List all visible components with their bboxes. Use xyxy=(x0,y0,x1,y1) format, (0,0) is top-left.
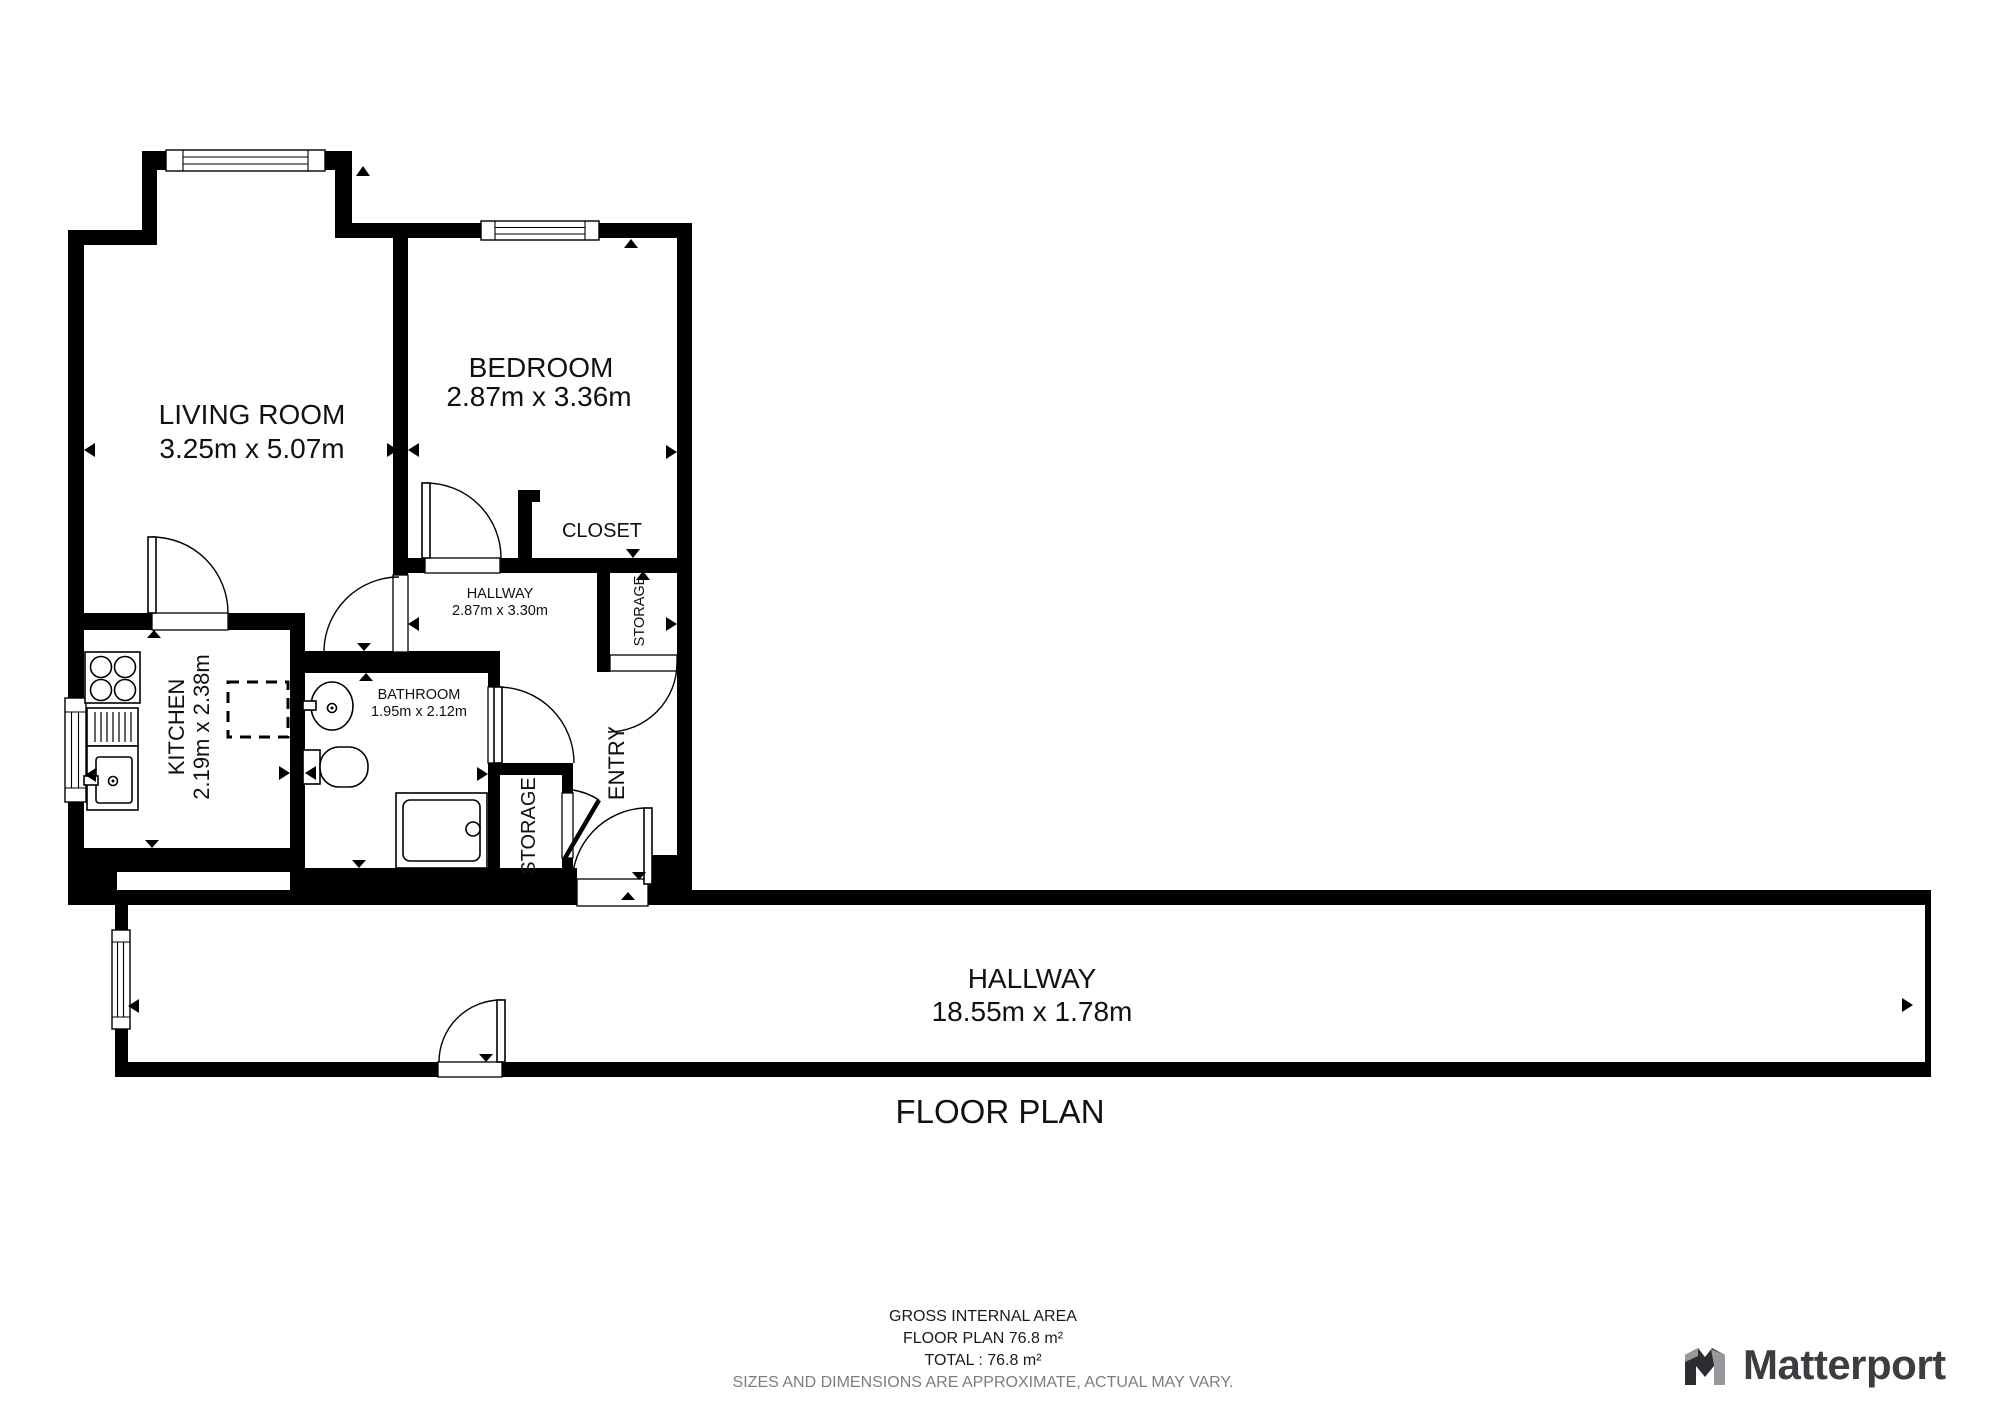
bathroom-door xyxy=(494,687,574,763)
hallway-door-opening xyxy=(438,1062,502,1077)
bedroom-window xyxy=(481,221,599,240)
arrow-marker xyxy=(408,617,419,631)
wall-segment xyxy=(488,651,500,687)
arrow-marker xyxy=(357,643,371,651)
arrow-marker xyxy=(626,549,640,558)
living-hallway-door xyxy=(324,577,399,652)
kitchen-dims: 2.19m x 2.38m xyxy=(189,654,214,800)
kitchen-window xyxy=(65,698,86,802)
bathroom-dims: 1.95m x 2.12m xyxy=(371,704,467,720)
disclaimer-line: SIZES AND DIMENSIONS ARE APPROXIMATE, AC… xyxy=(0,1372,1966,1394)
wall-segment xyxy=(562,763,573,793)
wall-segment xyxy=(597,558,610,672)
wall-segment xyxy=(142,151,157,245)
storage-lower-label: STORAGE xyxy=(518,777,540,874)
hallway-long-dims: 18.55m x 1.78m xyxy=(932,996,1133,1027)
gross-internal-area-line: GROSS INTERNAL AREA xyxy=(0,1306,1966,1328)
arrow-marker xyxy=(479,1054,493,1062)
arrow-marker xyxy=(359,673,373,681)
hallway-exit-door xyxy=(439,1000,505,1062)
living-room-dims: 3.25m x 5.07m xyxy=(159,433,344,464)
wall-segment xyxy=(488,763,573,775)
wall-segment xyxy=(1925,890,1931,1077)
wall-segment xyxy=(502,1062,1931,1077)
wall-segment xyxy=(68,230,84,700)
storage-upper-opening xyxy=(610,655,677,671)
matterport-branding: Matterport xyxy=(1680,1340,1946,1390)
arrow-marker xyxy=(279,766,290,780)
wall-segment xyxy=(68,848,117,905)
living-room-label: LIVING ROOM xyxy=(159,399,346,430)
shower xyxy=(396,793,487,868)
kitchen-door xyxy=(148,537,228,613)
footer: GROSS INTERNAL AREA FLOOR PLAN 76.8 m² T… xyxy=(0,1306,1966,1394)
arrow-markers xyxy=(84,166,1913,1062)
wall-segment xyxy=(290,651,500,673)
arrow-marker xyxy=(352,860,366,868)
arrow-marker xyxy=(477,767,488,781)
wall-segment xyxy=(393,558,425,573)
wall-segment xyxy=(648,855,692,893)
toilet xyxy=(303,747,368,787)
stove xyxy=(85,652,140,703)
arrow-marker xyxy=(408,443,419,457)
hallway-small-dims: 2.87m x 3.30m xyxy=(452,603,548,619)
floor-plan-area-line: FLOOR PLAN 76.8 m² xyxy=(0,1328,1966,1350)
arrow-marker xyxy=(624,239,638,248)
wall-segment xyxy=(84,613,152,630)
total-area-line: TOTAL : 76.8 m² xyxy=(0,1350,1966,1372)
bedroom-door xyxy=(422,483,501,558)
arrow-marker xyxy=(1902,998,1913,1012)
appliance-dashed-box xyxy=(228,682,288,737)
wall-segment xyxy=(648,890,1931,905)
wall-segment xyxy=(488,763,500,885)
bedroom-label: BEDROOM xyxy=(469,352,614,383)
kitchen-door-opening xyxy=(152,613,228,630)
hallway-small-label: HALLWAY xyxy=(467,586,534,602)
matterport-logo-icon xyxy=(1680,1340,1730,1390)
wall-segment xyxy=(115,890,577,905)
hallway-window xyxy=(112,930,130,1029)
arrow-marker xyxy=(356,166,370,176)
front-door-opening xyxy=(577,879,648,906)
arrow-marker xyxy=(666,617,677,631)
floor-plan-canvas: LIVING ROOM 3.25m x 5.07m BEDROOM 2.87m … xyxy=(0,0,2000,1414)
closet-label: CLOSET xyxy=(562,520,642,542)
bathroom-label: BATHROOM xyxy=(378,687,461,703)
arrow-marker xyxy=(147,630,161,638)
arrow-marker xyxy=(666,445,677,459)
bedroom-dims: 2.87m x 3.36m xyxy=(446,381,631,412)
wall-segment xyxy=(500,558,692,573)
walls xyxy=(68,151,1931,1077)
bathroom-sink xyxy=(303,682,353,730)
wall-segment xyxy=(393,238,408,575)
drainer xyxy=(87,708,138,746)
living-hallway-door-opening xyxy=(393,575,408,652)
kitchen-label: KITCHEN xyxy=(164,679,189,776)
wall-segment xyxy=(335,223,483,238)
storage-upper-door xyxy=(608,663,677,732)
entry-label: ENTRY xyxy=(604,726,629,800)
closet-stub-nub xyxy=(518,490,540,502)
wall-segment xyxy=(115,890,128,932)
bedroom-door-opening xyxy=(425,558,500,573)
arrow-marker xyxy=(84,443,95,457)
page-title: FLOOR PLAN xyxy=(895,1093,1104,1130)
hallway-long-label: HALLWAY xyxy=(968,963,1097,994)
wall-segment xyxy=(115,1062,438,1077)
bay-window xyxy=(166,150,325,171)
arrow-marker xyxy=(145,840,159,848)
matterport-logo-text: Matterport xyxy=(1743,1341,1946,1389)
storage-upper-label: STORAGE xyxy=(632,575,648,646)
